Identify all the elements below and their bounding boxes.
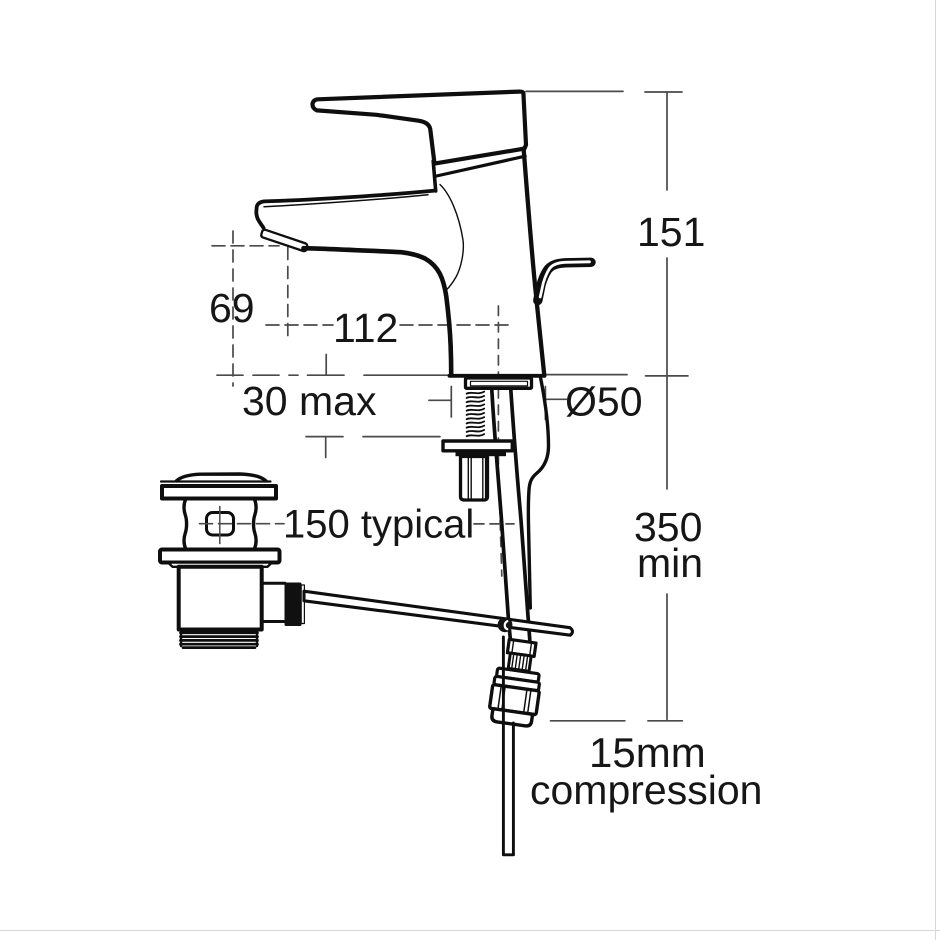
svg-text:151: 151 [637,209,705,255]
svg-text:112: 112 [333,305,398,351]
svg-text:compression: compression [530,767,762,813]
svg-text:Ø50: Ø50 [565,379,643,425]
svg-text:69: 69 [209,285,255,331]
svg-text:30 max: 30 max [242,378,377,424]
svg-text:150 typical: 150 typical [283,503,474,547]
svg-text:min: min [637,540,703,586]
